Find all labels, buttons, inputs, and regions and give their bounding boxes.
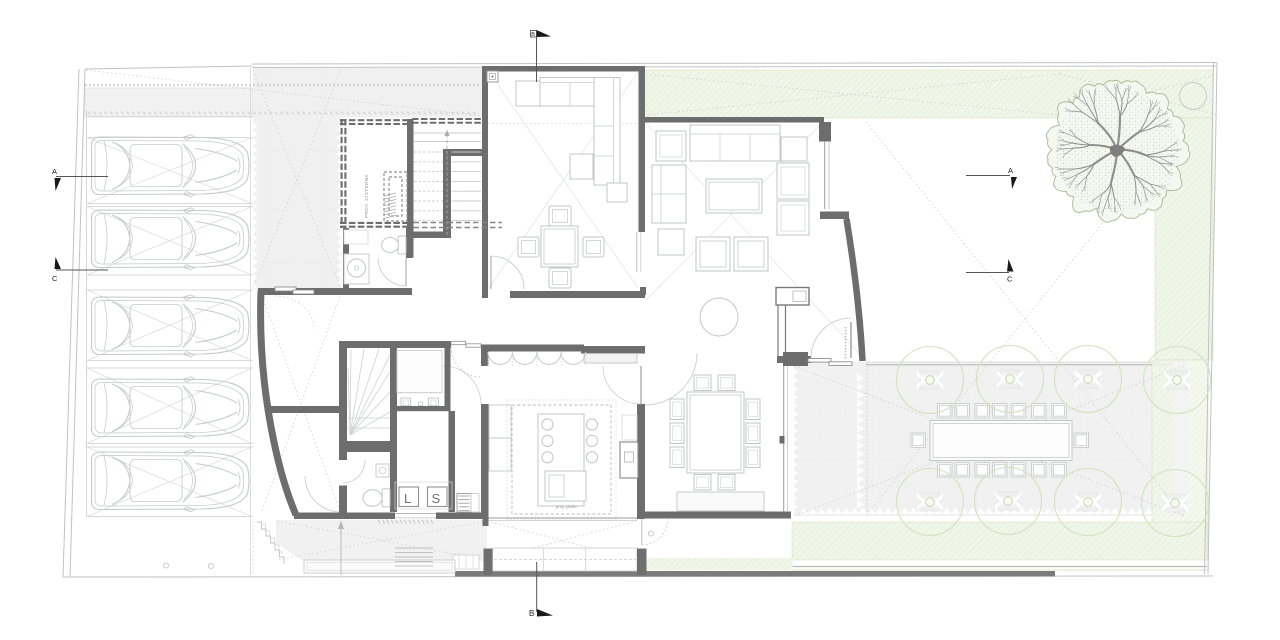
svg-text:C: C	[52, 274, 58, 283]
svg-text:C: C	[1007, 275, 1013, 284]
svg-text:B: B	[531, 32, 535, 38]
svg-text:A: A	[1008, 166, 1013, 175]
svg-text:proy. plafon: proy. plafon	[556, 504, 578, 509]
svg-text:B: B	[529, 609, 534, 618]
svg-text:L: L	[404, 491, 411, 506]
svg-text:A: A	[52, 167, 57, 176]
svg-text:PROY. CISTERNA: PROY. CISTERNA	[364, 174, 369, 218]
svg-text:S: S	[432, 491, 441, 506]
